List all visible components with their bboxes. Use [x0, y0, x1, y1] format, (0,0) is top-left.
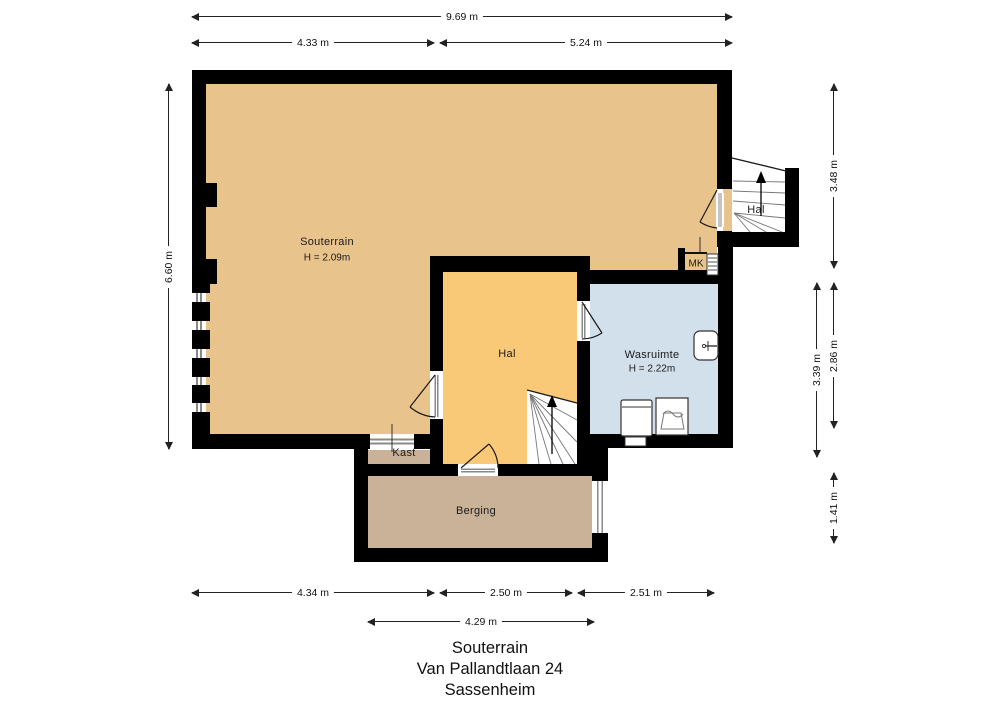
wall-segment: [785, 168, 799, 247]
wall-segment: [498, 464, 598, 476]
arrowhead-icon: [165, 83, 173, 91]
arrowhead-icon: [830, 83, 838, 91]
room-height-wasruimte: H = 2.22m: [629, 364, 675, 375]
title-floor: Souterrain: [417, 638, 563, 659]
dimension-top-left: 4.33 m: [192, 42, 434, 43]
room-fill-souterrain-lower: [206, 270, 430, 434]
wall-segment: [192, 302, 210, 321]
window-icon: [192, 293, 206, 302]
arrowhead-icon: [830, 421, 838, 429]
dimension-label: 3.48 m: [828, 155, 840, 197]
dimension-label: 2.50 m: [485, 587, 527, 599]
wall-segment: [717, 70, 732, 189]
wall-segment: [717, 231, 732, 247]
dimension-label: 9.69 m: [441, 11, 483, 23]
arrowhead-icon: [427, 589, 435, 597]
stairs-area-hal: [527, 390, 577, 464]
arrowhead-icon: [725, 39, 733, 47]
room-height-souterrain: H = 2.09m: [304, 253, 350, 264]
wall-segment: [592, 533, 608, 562]
arrowhead-icon: [813, 282, 821, 290]
dimension-label: 4.29 m: [460, 616, 502, 628]
wall-segment: [718, 247, 733, 448]
room-label-kast: Kast: [392, 447, 415, 459]
wall-segment: [354, 464, 458, 476]
window-icon: [192, 349, 206, 358]
dimension-right-upper: 3.48 m: [833, 84, 834, 268]
window-icon: [192, 377, 206, 385]
room-label-berging: Berging: [456, 505, 496, 517]
arrowhead-icon: [191, 39, 199, 47]
title-block: Souterrain Van Pallandtlaan 24 Sassenhei…: [417, 638, 563, 701]
wall-segment: [577, 434, 733, 448]
arrowhead-icon: [725, 13, 733, 21]
arrowhead-icon: [830, 282, 838, 290]
arrowhead-icon: [707, 589, 715, 597]
arrowhead-icon: [439, 589, 447, 597]
dimension-label: 5.24 m: [565, 37, 607, 49]
window-icon: [192, 403, 206, 412]
wall-segment: [192, 412, 210, 434]
arrowhead-icon: [830, 472, 838, 480]
door-frame: [716, 193, 724, 227]
arrowhead-icon: [565, 589, 573, 597]
title-city: Sassenheim: [417, 680, 563, 701]
dimension-bottom-mid: 2.50 m: [440, 592, 572, 593]
dimension-right-lower: 1.41 m: [833, 473, 834, 543]
door-frame: [432, 375, 441, 417]
dimension-bottom-berging: 4.29 m: [368, 621, 594, 622]
floorplan-page: Souterrain H = 2.09m Hal Wasruimte H = 2…: [0, 0, 1000, 707]
wall-segment: [430, 256, 443, 371]
wall-segment: [592, 448, 608, 481]
wall-segment: [192, 70, 206, 283]
wall-segment: [192, 385, 210, 403]
dimension-right-mid-outer: 2.86 m: [833, 283, 834, 428]
room-label-mk: MK: [689, 259, 704, 270]
arrowhead-icon: [587, 618, 595, 626]
wall-segment: [206, 183, 217, 207]
dimension-right-mid-inner: 3.39 m: [816, 283, 817, 457]
wall-segment: [192, 358, 210, 377]
window-icon: [192, 321, 206, 330]
arrowhead-icon: [813, 450, 821, 458]
arrowhead-icon: [830, 261, 838, 269]
arrowhead-icon: [191, 589, 199, 597]
arrowhead-icon: [165, 442, 173, 450]
dimension-left-total: 6.60 m: [168, 84, 169, 449]
stairs-area-upper: [732, 158, 785, 232]
dimension-label: 4.34 m: [292, 587, 334, 599]
dimension-label: 2.86 m: [828, 334, 840, 376]
arrowhead-icon: [191, 13, 199, 21]
wall-segment: [192, 283, 210, 293]
room-label-hal-upper: Hal: [747, 204, 764, 216]
wall-segment: [206, 259, 217, 284]
wall-segment: [577, 270, 733, 284]
wall-segment: [354, 548, 608, 562]
room-label-hal-center: Hal: [498, 348, 515, 360]
wall-segment: [192, 70, 732, 84]
wall-segment: [354, 434, 368, 562]
room-fill-souterrain-upper: [206, 84, 717, 270]
window-icon: [592, 481, 608, 533]
door-frame: [461, 466, 495, 475]
dimension-label: 3.39 m: [811, 349, 823, 391]
dimension-bottom-left: 4.34 m: [192, 592, 434, 593]
title-address: Van Pallandtlaan 24: [417, 659, 563, 680]
dimension-top-total: 9.69 m: [192, 16, 732, 17]
room-label-souterrain: Souterrain: [300, 236, 354, 248]
arrowhead-icon: [427, 39, 435, 47]
wall-segment: [430, 256, 590, 272]
dimension-label: 1.41 m: [828, 487, 840, 529]
dimension-label: 2.51 m: [625, 587, 667, 599]
wall-segment: [192, 330, 210, 349]
arrowhead-icon: [367, 618, 375, 626]
dimension-top-right: 5.24 m: [440, 42, 732, 43]
dimension-label: 6.60 m: [163, 245, 175, 287]
dimension-label: 4.33 m: [292, 37, 334, 49]
wall-segment: [678, 248, 685, 284]
arrowhead-icon: [439, 39, 447, 47]
arrowhead-icon: [577, 589, 585, 597]
door-frame: [579, 304, 588, 338]
arrowhead-icon: [830, 536, 838, 544]
room-label-wasruimte: Wasruimte: [625, 349, 680, 361]
wall-segment: [192, 434, 370, 449]
dimension-bottom-right: 2.51 m: [578, 592, 714, 593]
door-threshold: [723, 189, 732, 231]
